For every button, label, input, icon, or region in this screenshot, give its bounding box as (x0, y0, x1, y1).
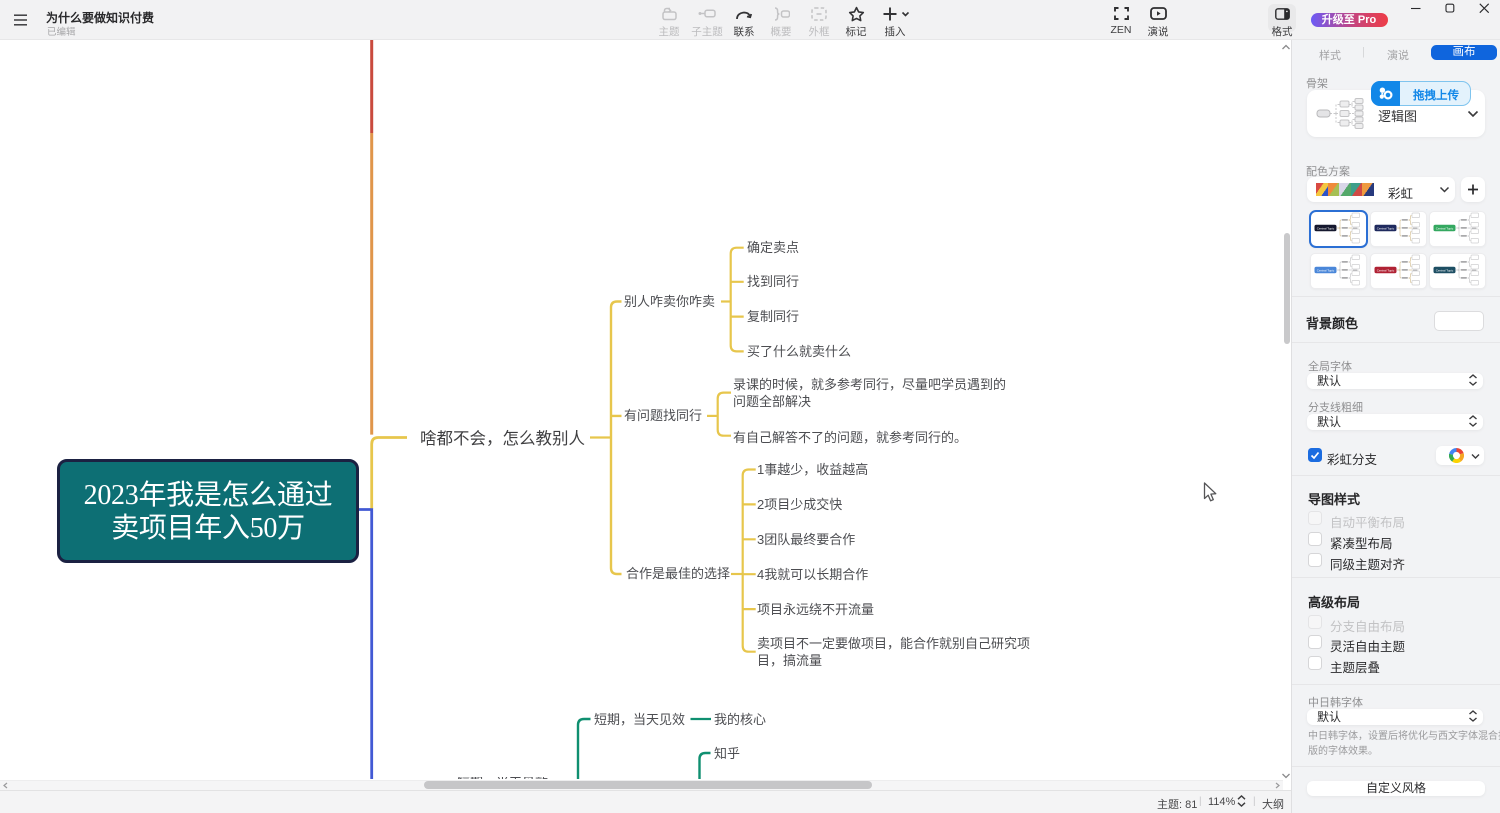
svg-text:Central Topic: Central Topic (1376, 268, 1394, 272)
svg-text:Central Topic: Central Topic (1376, 226, 1394, 230)
svg-text:Central Topic: Central Topic (1436, 226, 1454, 230)
svg-text:Central Topic: Central Topic (1436, 268, 1454, 272)
svg-text:Central Topic: Central Topic (1317, 268, 1335, 272)
svg-text:Central Topic: Central Topic (1317, 226, 1335, 230)
